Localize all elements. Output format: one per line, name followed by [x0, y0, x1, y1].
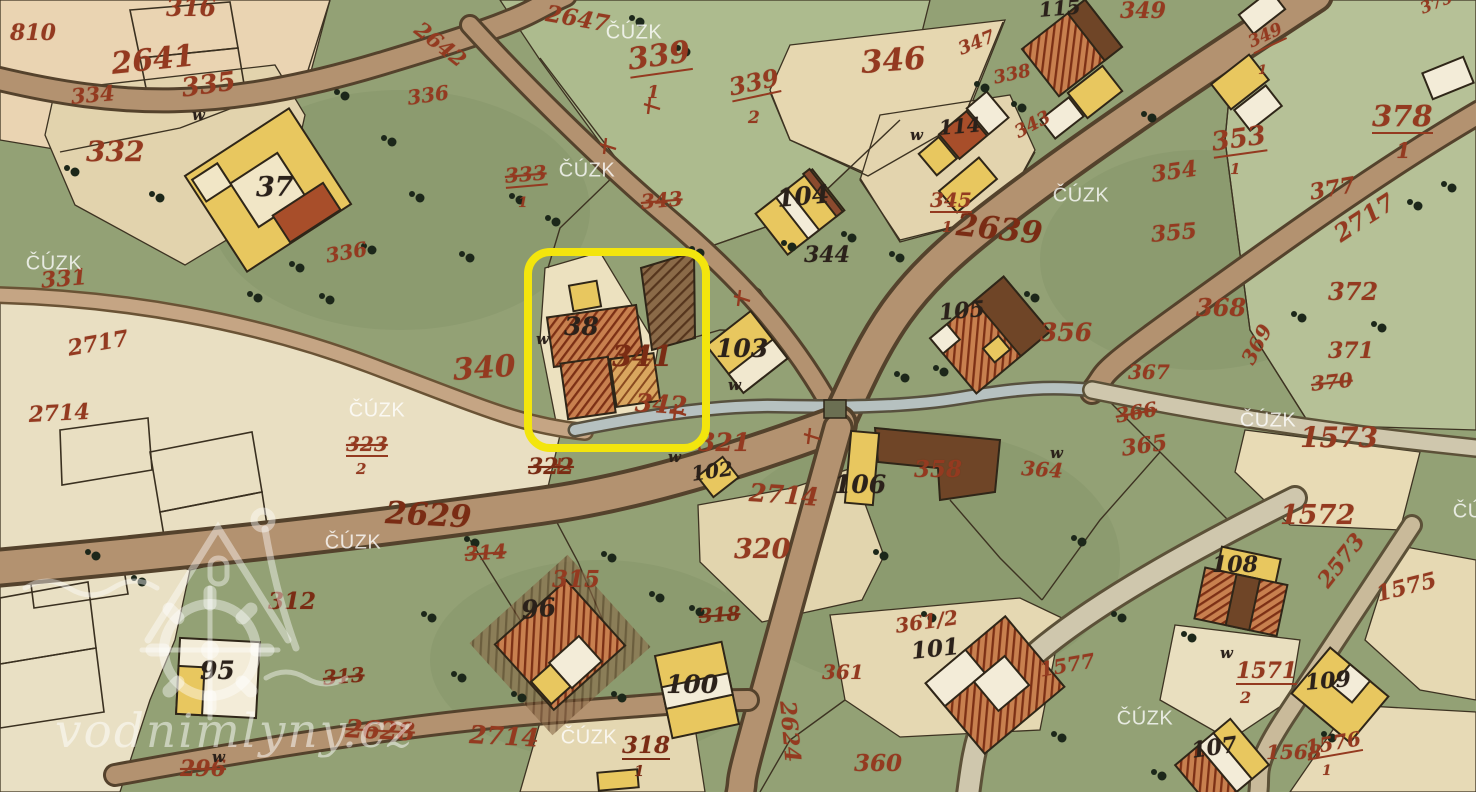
- building-95: [176, 638, 260, 718]
- highlight-rectangle: [524, 248, 710, 452]
- stream-crossing: [824, 400, 846, 418]
- cadastral-map: [0, 0, 1476, 792]
- map-viewport[interactable]: 8103162641334335332264226473391339234634…: [0, 0, 1476, 792]
